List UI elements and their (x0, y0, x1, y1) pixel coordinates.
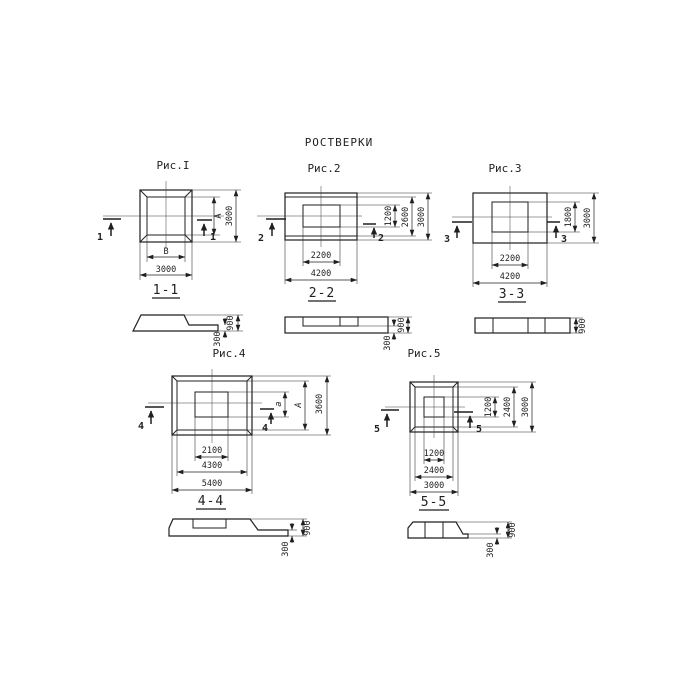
fig2-cut-mark-left: 2 (258, 233, 264, 244)
section-2-2-view: 300 900 (285, 317, 412, 351)
fig4-cut-mark-right: 4 (262, 423, 268, 434)
section-2-2-ledge-height: 300 (383, 335, 393, 350)
section-2-2-total-height: 900 (397, 317, 407, 332)
section-3-3-label: 3-3 (499, 287, 525, 302)
fig4-dim-bottom-mid: 4300 (202, 461, 222, 471)
sheet-title: РОСТВЕРКИ (305, 136, 374, 149)
figure-3-caption: Рис.3 (488, 162, 521, 175)
fig2-dim-right-inner: 1200 (384, 206, 394, 226)
figure-2-dimensions: 1200 2600 3000 2200 4200 (285, 193, 432, 284)
section-5-5-ledge-height: 300 (486, 542, 496, 557)
fig2-dim-right-mid: 2600 (401, 207, 411, 227)
figure-2-caption: Рис.2 (307, 162, 340, 175)
section-1-1-total-height: 900 (226, 315, 236, 330)
fig3-cut-mark-left: 3 (444, 234, 450, 245)
fig4-dim-right-inner: а (274, 401, 284, 406)
fig4-dim-right-mid: А (294, 402, 304, 408)
fig4-cut-mark-left: 4 (138, 421, 144, 432)
fig1-dim-right-inner: А (214, 213, 224, 218)
fig4-dim-bottom-inner: 2100 (202, 446, 222, 456)
section-2-2-label: 2-2 (309, 286, 335, 301)
fig4-dim-bottom-outer: 5400 (202, 479, 222, 489)
fig1-cut-mark-left: 1 (97, 232, 103, 243)
fig3-cut-mark-right: 3 (561, 234, 567, 245)
section-5-5-view: 300 900 (408, 522, 518, 558)
figure-2-plan-view (257, 186, 362, 247)
section-1-1-view: 300 900 (133, 315, 243, 347)
fig5-dim-bottom-outer: 3000 (424, 481, 444, 491)
figure-4: Рис.4 а А 3600 (138, 347, 331, 557)
fig2-cut-mark-right: 2 (378, 233, 384, 244)
fig5-dim-bottom-inner: 1200 (424, 449, 444, 459)
figure-2: Рис.2 1200 2600 3000 (257, 162, 432, 351)
figure-1-cut-marks: 1 1 (97, 219, 216, 243)
fig5-dim-right-mid: 2400 (503, 397, 513, 417)
fig3-dim-right-inner: 1800 (564, 207, 574, 227)
figure-3-plan-view (452, 186, 552, 250)
fig4-dim-right-outer: 3600 (315, 394, 325, 414)
fig5-cut-mark-right: 5 (476, 424, 482, 435)
figure-5: Рис.5 1200 2400 30 (374, 347, 536, 558)
fig5-dim-right-outer: 3000 (521, 397, 531, 417)
fig2-dim-bottom-inner: 2200 (311, 251, 331, 261)
section-1-1-ledge-height: 300 (213, 331, 223, 346)
fig5-dim-right-inner: 1200 (484, 397, 494, 417)
figure-4-caption: Рис.4 (212, 347, 245, 360)
figure-5-caption: Рис.5 (407, 347, 440, 360)
fig1-dim-bottom-outer: 3000 (156, 265, 176, 275)
figure-5-cut-marks: 5 5 (374, 410, 482, 435)
section-4-4-total-height: 900 (303, 520, 313, 535)
fig3-dim-right-outer: 3000 (583, 208, 593, 228)
fig1-dim-bottom-inner: В (163, 247, 168, 257)
fig2-dim-right-outer: 3000 (417, 207, 427, 227)
section-5-5-total-height: 900 (508, 522, 518, 537)
fig3-dim-bottom-inner: 2200 (500, 254, 520, 264)
section-3-3-total-height: 900 (578, 318, 588, 333)
section-4-4-label: 4-4 (198, 494, 224, 509)
section-1-1-label: 1-1 (153, 283, 179, 298)
drawing-sheet: РОСТВЕРКИ Рис.I А 3000 (0, 0, 700, 700)
fig2-dim-bottom-outer: 4200 (311, 269, 331, 279)
section-4-4-ledge-height: 300 (281, 541, 291, 556)
figure-1-plan-view (103, 181, 224, 249)
grillage-drawing-canvas: РОСТВЕРКИ Рис.I А 3000 (0, 0, 700, 700)
fig1-cut-mark-right: 1 (210, 232, 216, 243)
figure-4-plan-view (148, 369, 262, 443)
section-3-3-view: 900 (475, 318, 588, 334)
figure-3: Рис.3 1800 3000 2200 (444, 162, 599, 334)
fig3-dim-bottom-outer: 4200 (500, 272, 520, 282)
figure-3-cut-marks: 3 3 (444, 222, 567, 245)
figure-5-dimensions: 1200 2400 3000 1200 2400 3000 (410, 382, 536, 496)
fig1-dim-right-outer: 3000 (225, 206, 235, 226)
fig5-cut-mark-left: 5 (374, 424, 380, 435)
fig5-dim-bottom-mid: 2400 (424, 466, 444, 476)
section-5-5-label: 5-5 (421, 495, 447, 510)
section-4-4-view: 300 900 (169, 519, 313, 557)
figure-1-caption: Рис.I (156, 159, 189, 172)
figure-1: Рис.I А 3000 В (97, 159, 243, 347)
